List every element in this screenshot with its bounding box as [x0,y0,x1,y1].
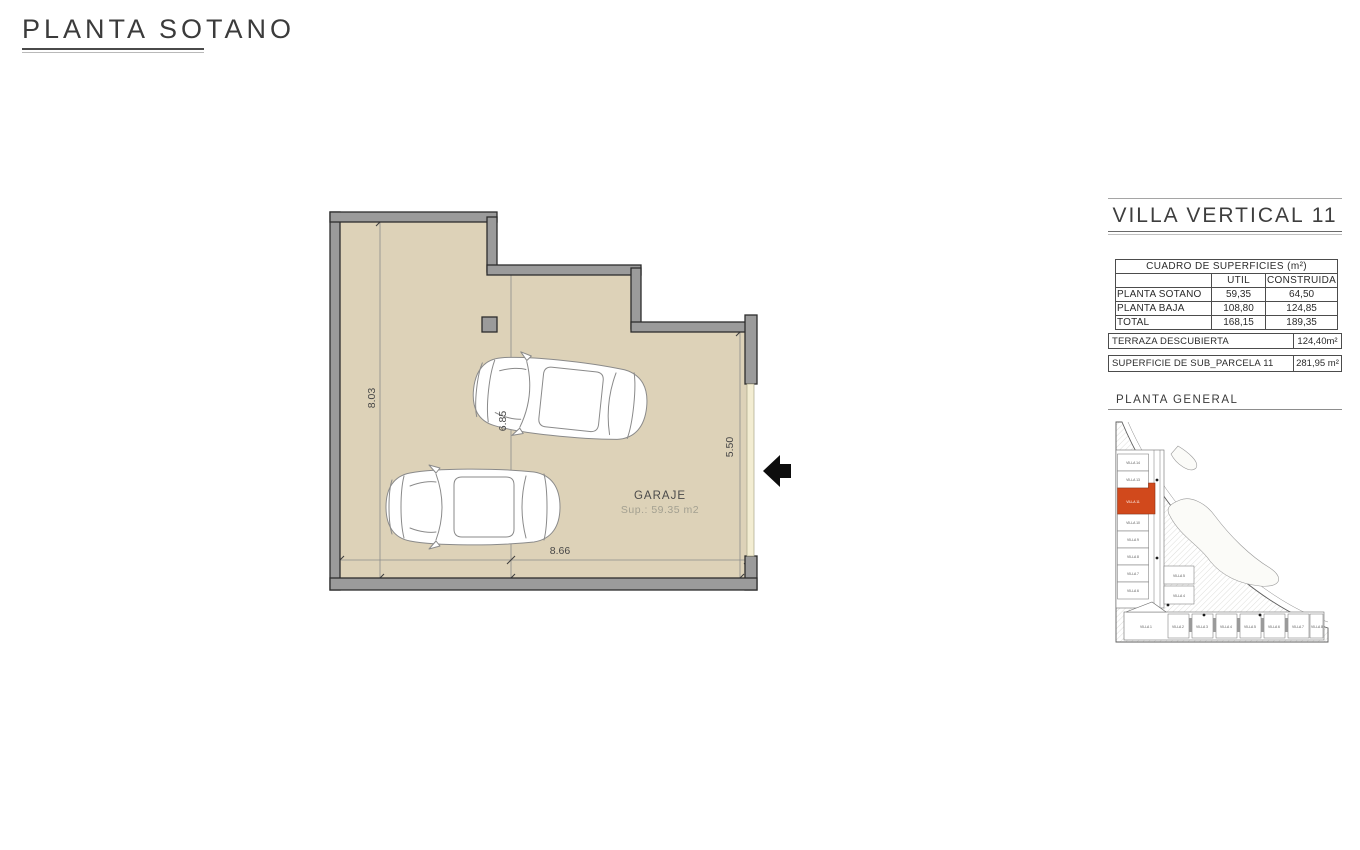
unit-label: VILLA 8 [1311,625,1323,629]
wall-left [330,212,340,590]
terraza-value: 124,40m² [1293,334,1341,348]
villa-title: VILLA VERTICAL 11 [1108,204,1342,228]
unit-label: VILLA 3 [1196,625,1208,629]
siteplan-title: PLANTA GENERAL [1116,394,1342,406]
surfaces-col-empty [1116,274,1212,288]
row-util: 59,35 [1212,288,1266,302]
unit-label: VILLA 5 [1173,574,1185,578]
unit-label-highlighted: VILLA 11 [1126,500,1140,504]
terraza-label: TERRAZA DESCUBIERTA [1109,334,1293,348]
row-util: 168,15 [1212,316,1266,330]
unit-label: VILLA 6 [1127,589,1139,593]
row-label: PLANTA SOTANO [1116,288,1212,302]
unit-label: VILLA 10 [1126,521,1140,525]
unit-label: VILLA 5 [1244,625,1256,629]
parcela-label: SUPERFICIE DE SUB_PARCELA 11 [1109,356,1293,371]
garage-door-strip [747,384,754,556]
entry-arrow-icon [763,455,791,487]
wall-step-vertical-2 [631,268,641,329]
villa-title-underline-light [1108,234,1342,235]
dimension-label-left: 8.03 [366,388,378,409]
dimension-label-right: 5.50 [724,437,736,458]
room-label: GARAJE [634,490,686,502]
unit-label: VILLA 4 [1220,625,1232,629]
row-construida: 124,85 [1266,302,1338,316]
unit-label: VILLA 8 [1127,555,1139,559]
dimension-label-middle: 6.85 [497,411,509,432]
unit-label: VILLA 14 [1126,461,1140,465]
unit-label: VILLA 7 [1292,625,1304,629]
table-row: PLANTA SOTANO 59,35 64,50 [1116,288,1338,302]
surfaces-col-util: UTIL [1212,274,1266,288]
row-label: PLANTA BAJA [1116,302,1212,316]
unit-label: VILLA 6 [1268,625,1280,629]
pillar [482,317,497,332]
unit-label: VILLA 4 [1173,594,1185,598]
wall-right-top [745,315,757,384]
unit-label: VILLA 2 [1172,625,1184,629]
villa-heading: VILLA VERTICAL 11 [1108,198,1342,235]
siteplan-title-underline [1108,409,1342,410]
parcela-value: 281,95 m² [1293,356,1341,371]
parcela-bar: SUPERFICIE DE SUB_PARCELA 11 281,95 m² [1108,355,1342,372]
site-plan-thumbnail: VILLA 14 VILLA 13 VILLA 11 VILLA 10 VILL… [1108,416,1334,648]
surfaces-table-header: CUADRO DE SUPERFICIES (m²) [1116,260,1338,274]
row-util: 108,80 [1212,302,1266,316]
unit-label: VILLA 1 [1140,625,1152,629]
surfaces-table: CUADRO DE SUPERFICIES (m²) UTIL CONSTRUI… [1115,259,1338,330]
surfaces-col-construida: CONSTRUIDA [1266,274,1338,288]
table-row: PLANTA BAJA 108,80 124,85 [1116,302,1338,316]
room-area-label: Sup.: 59.35 m2 [621,504,699,516]
villa-title-underline [1108,231,1342,232]
wall-step-vertical-1 [487,217,497,272]
wall-step-horizontal-1 [487,265,641,275]
drawing-sheet: PLANTA SOTANO [0,0,1360,850]
wall-step-horizontal-2 [631,322,748,332]
garden-shape-small [1171,446,1197,470]
dimension-label-bottom: 8.66 [550,545,571,557]
terraza-bar: TERRAZA DESCUBIERTA 124,40m² [1108,333,1342,349]
row-construida: 189,35 [1266,316,1338,330]
wall-bottom [330,578,757,590]
row-label: TOTAL [1116,316,1212,330]
unit-label: VILLA 9 [1127,538,1139,542]
info-panel: VILLA VERTICAL 11 CUADRO DE SUPERFICIES … [1108,198,1342,648]
row-construida: 64,50 [1266,288,1338,302]
car-bottom [386,465,560,549]
wall-top [330,212,497,222]
table-row: TOTAL 168,15 189,35 [1116,316,1338,330]
unit-label: VILLA 13 [1126,478,1140,482]
unit-label: VILLA 7 [1127,572,1139,576]
